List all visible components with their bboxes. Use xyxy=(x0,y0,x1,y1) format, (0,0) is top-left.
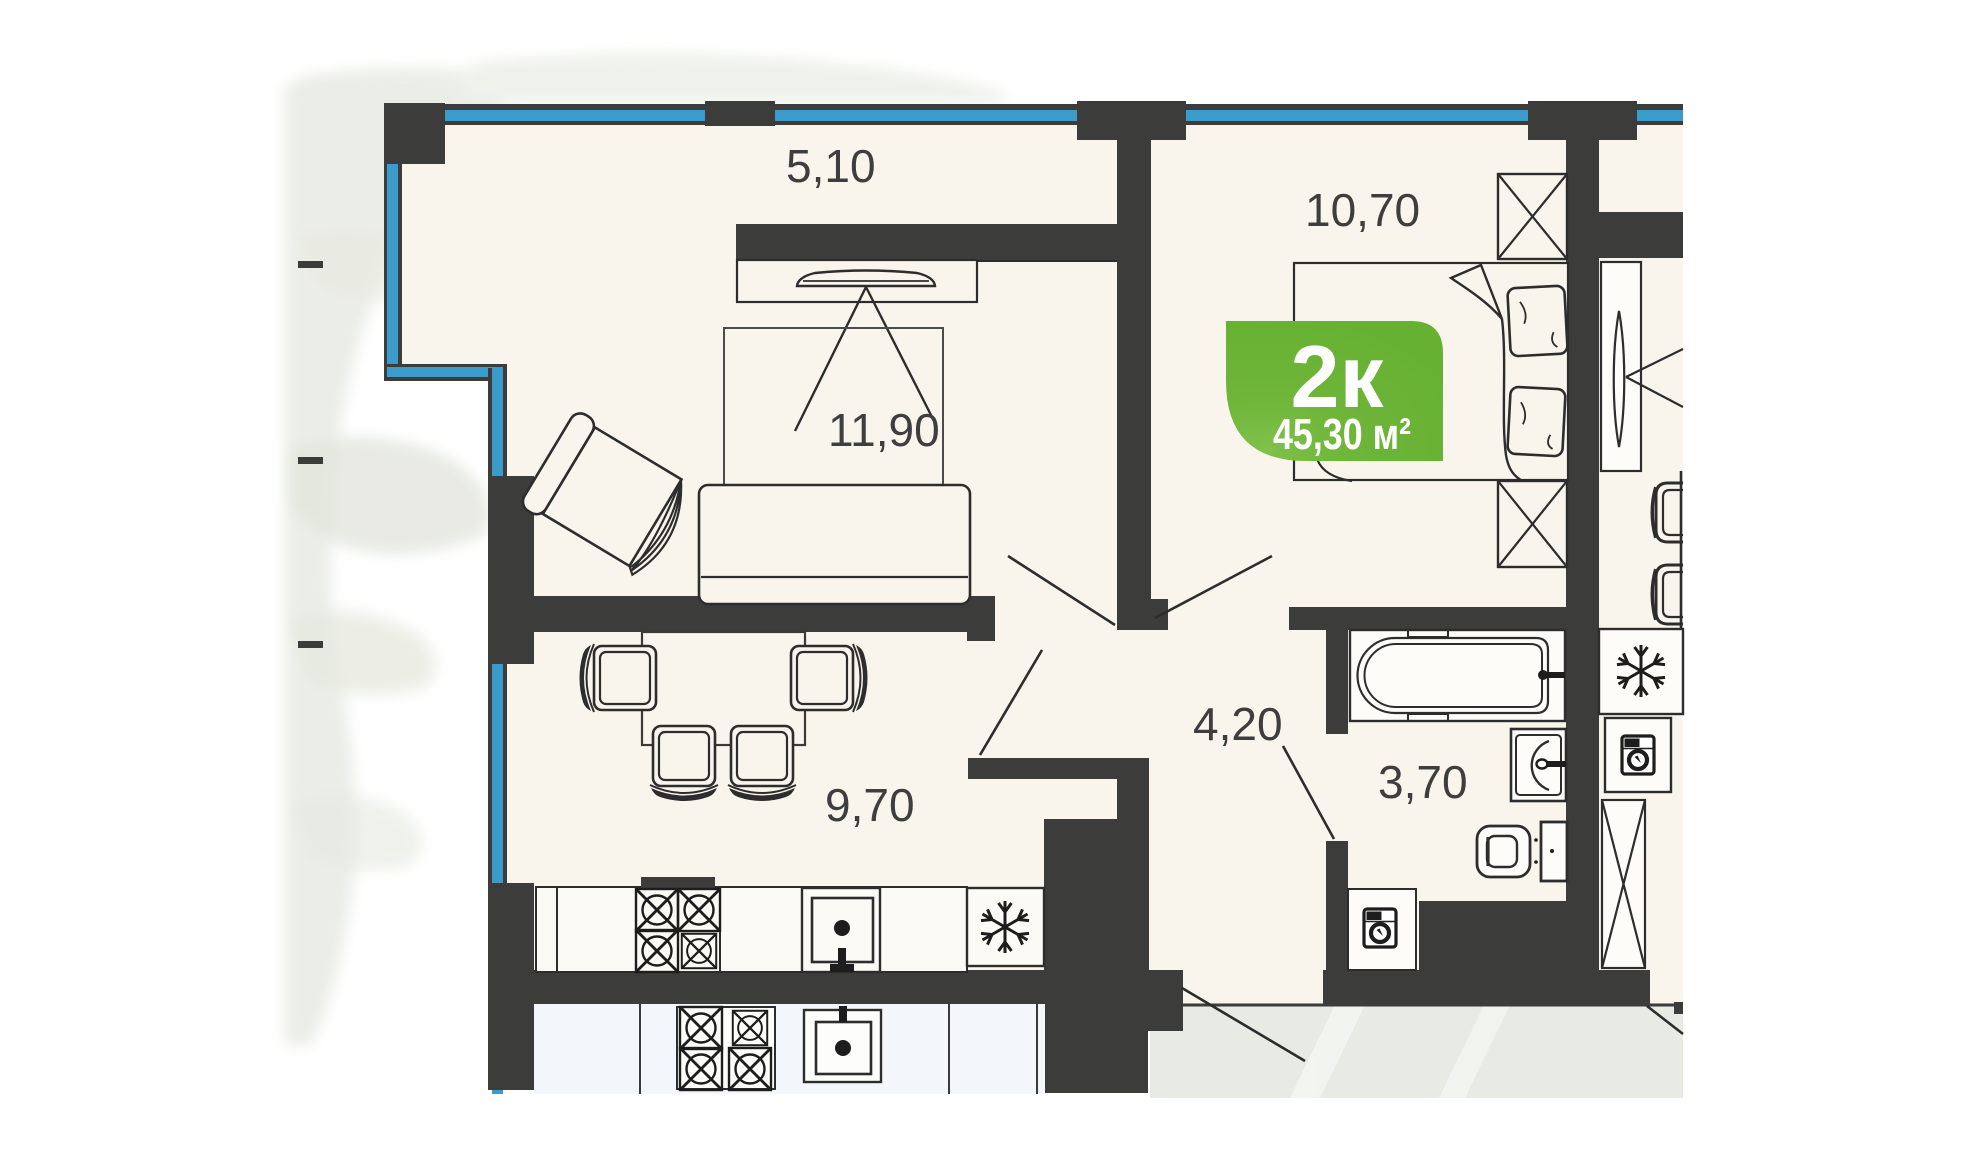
svg-text:4,20: 4,20 xyxy=(1193,698,1283,750)
svg-text:11,90: 11,90 xyxy=(828,404,940,456)
svg-text:3,70: 3,70 xyxy=(1378,756,1468,808)
svg-text:5,10: 5,10 xyxy=(786,140,876,192)
svg-text:10,70: 10,70 xyxy=(1305,184,1420,236)
svg-text:45,30 м²: 45,30 м² xyxy=(1273,410,1411,459)
svg-text:9,70: 9,70 xyxy=(825,779,915,831)
